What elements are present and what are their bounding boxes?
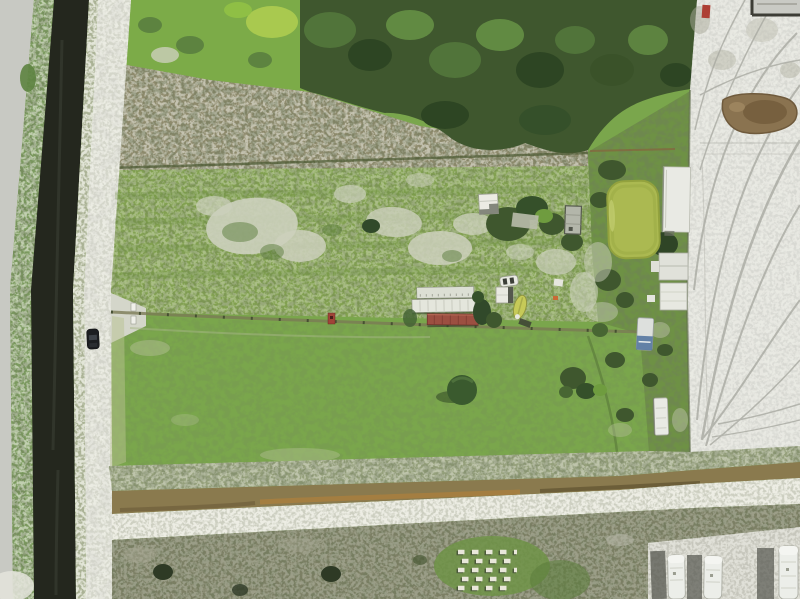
rv-1-vent xyxy=(673,572,676,575)
gate-post-1 xyxy=(131,303,136,311)
shoulder-palm xyxy=(20,64,36,92)
cart-window-2 xyxy=(510,277,515,283)
blue-trailer-stripe xyxy=(639,342,651,343)
rv-3-vent xyxy=(786,568,789,571)
corner-structure xyxy=(752,0,800,15)
gray-shed-vent xyxy=(569,227,573,231)
rv-1 xyxy=(668,555,686,599)
barn-door-shadow xyxy=(664,231,674,236)
cart-window-1 xyxy=(503,278,508,284)
white-shed xyxy=(478,194,498,215)
boat-shed-shadow xyxy=(508,287,513,303)
white-box xyxy=(553,278,563,286)
car xyxy=(86,329,99,350)
aerial-photo-stage: aerial-drone-photo xyxy=(0,0,800,599)
gate-post-2 xyxy=(131,316,136,324)
rv-3 xyxy=(779,546,798,599)
rv-2 xyxy=(704,556,723,599)
aerial-photo: aerial-drone-photo xyxy=(0,0,800,599)
storage-trailer-1 xyxy=(417,286,474,298)
rv-1-cab xyxy=(668,555,685,563)
lone-trailer-roof xyxy=(653,398,668,435)
blue-trailer xyxy=(636,318,654,351)
red-roof-bit xyxy=(702,5,711,19)
car-roof xyxy=(89,343,97,347)
rv-3-cab xyxy=(779,546,798,555)
gray-shed-roof xyxy=(565,206,582,235)
car-windshield xyxy=(89,335,97,340)
camper-box-2 xyxy=(647,295,655,302)
white-cart xyxy=(499,275,518,287)
lone-trailer xyxy=(653,398,668,435)
mud-puddle-deep xyxy=(743,100,787,124)
mud-puddle-shallow xyxy=(729,102,745,112)
field-bush xyxy=(362,219,380,233)
camper-2 xyxy=(660,283,687,310)
storage-trailer-2 xyxy=(412,298,475,312)
boat-shed xyxy=(496,287,513,303)
tractor-seat xyxy=(330,316,333,319)
farm-pond xyxy=(607,180,661,259)
camper-box-1 xyxy=(651,261,659,272)
rv-2-vent xyxy=(710,574,713,577)
orange-item xyxy=(553,296,558,300)
red-tractor xyxy=(328,313,335,324)
gray-shed xyxy=(565,206,582,235)
rv-2-cab xyxy=(704,556,722,564)
field-edge-track xyxy=(110,316,126,468)
white-barn xyxy=(662,167,690,236)
